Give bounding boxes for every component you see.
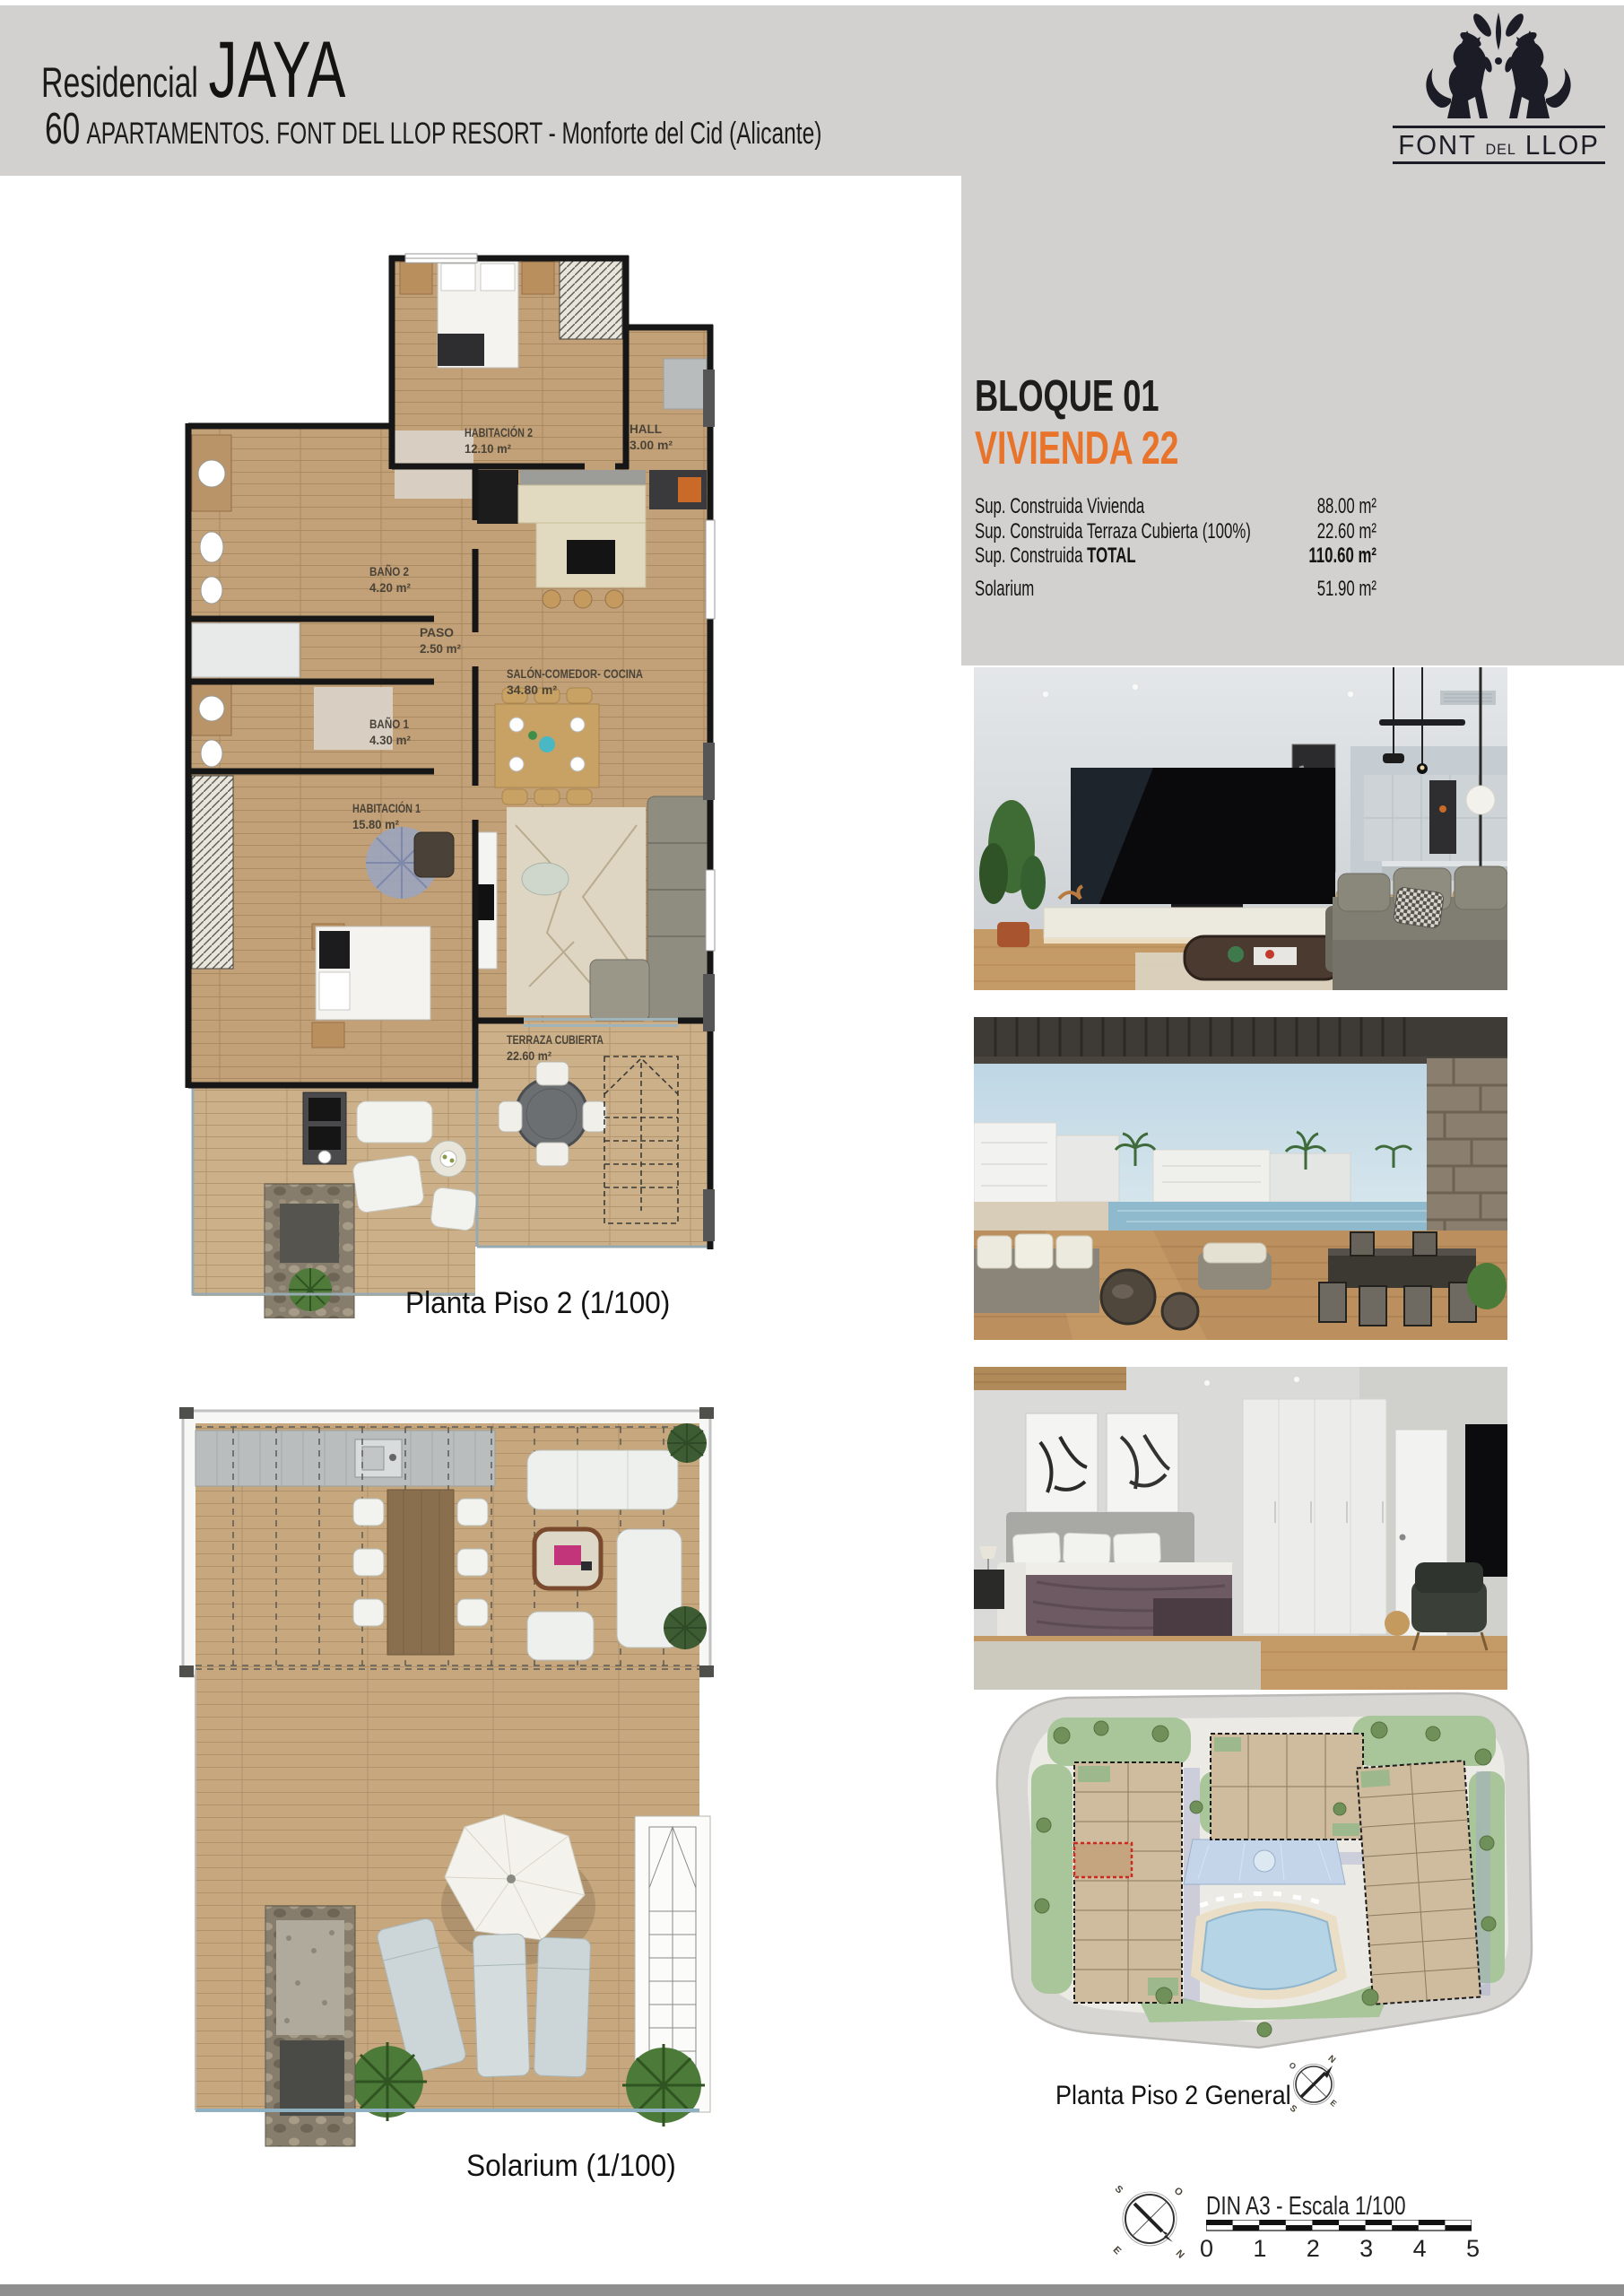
bbq-unit	[303, 1092, 346, 1164]
compass-n: N	[1326, 2054, 1338, 2066]
compass-icon: N O E S	[1284, 2048, 1343, 2113]
tv-screen	[1465, 1424, 1507, 1577]
room-label-bano2: BAÑO 2	[369, 565, 409, 578]
compass-icon-scale: S O E N	[1108, 2178, 1191, 2260]
fireplace-cabinet	[649, 470, 707, 509]
room-label-terraza: TERRAZA CUBIERTA	[507, 1033, 604, 1047]
solarium-lounge	[527, 1423, 707, 1660]
row-value: 51.90 m²	[1317, 577, 1376, 602]
block-left	[1074, 1762, 1182, 2003]
room-area-hall: 3.00 m²	[630, 439, 673, 452]
tick: 4	[1413, 2235, 1427, 2263]
dining-table	[495, 688, 599, 804]
row-label: Sup. Construida Terraza Cubierta (100%)	[975, 519, 1251, 544]
room-label-paso: PASO	[420, 626, 454, 639]
subtitle-text: APARTAMENTOS. FONT DEL LLOP RESORT - Mon…	[86, 117, 821, 152]
page-subtitle: 60 APARTAMENTOS. FONT DEL LLOP RESORT - …	[45, 104, 821, 154]
row-label: Solarium	[975, 577, 1034, 602]
table-row: Sup. Construida Terraza Cubierta (100%) …	[975, 519, 1376, 544]
compass-o: O	[1172, 2186, 1185, 2199]
page-title: Residencial JAYA	[41, 23, 346, 116]
row-value: 110.60 m²	[1308, 544, 1376, 569]
wardrobe-hab2	[560, 260, 622, 339]
outdoor-counter	[195, 1431, 495, 1486]
compass-o: O	[1287, 2060, 1298, 2071]
block-center	[1211, 1734, 1363, 1839]
wardrobe	[1243, 1399, 1386, 1634]
row-value: 22.60 m²	[1317, 519, 1376, 544]
wardrobe-hab1	[192, 776, 233, 969]
tick: 0	[1200, 2235, 1213, 2263]
subtitle-number: 60	[45, 104, 80, 154]
top-margin	[0, 0, 1624, 5]
logo-llop: LLOP	[1525, 129, 1600, 161]
room-area-terraza: 22.60 m²	[507, 1049, 551, 1063]
room-label-hall: HALL	[630, 422, 662, 436]
room-area-salon: 34.80 m²	[507, 683, 558, 697]
font-del-llop-emblem-icon	[1395, 5, 1602, 124]
room-area-paso: 2.50 m²	[420, 642, 461, 656]
solarium-caption: Solarium (1/100)	[466, 2149, 676, 2184]
room-label-salon: SALÓN-COMEDOR- COCINA	[507, 667, 643, 681]
pergola-ceiling	[974, 1017, 1507, 1058]
highlighted-unit-22	[1074, 1843, 1132, 1877]
compass-s: S	[1288, 2103, 1298, 2113]
block-title: BLOQUE 01	[975, 371, 1159, 422]
floor-plan-solarium: SOLARIUM 51.90 m²	[179, 1404, 717, 2148]
compass-n: N	[1174, 2248, 1186, 2260]
room-label-bano1: BAÑO 1	[369, 717, 409, 731]
scale-label: DIN A3 - Escala 1/100	[1206, 2192, 1406, 2222]
sofa-photo	[1325, 866, 1507, 990]
logo-rule-top	[1393, 126, 1605, 128]
room-area-hab2: 12.10 m²	[465, 442, 511, 456]
row-label: Sup. Construida Vivienda	[975, 494, 1144, 519]
logo-rule-bottom	[1393, 161, 1605, 164]
siteplan-caption: Planta Piso 2 General	[1055, 2081, 1291, 2111]
plan-piso2-caption: Planta Piso 2 (1/100)	[405, 1286, 670, 1321]
compass-e: E	[1328, 2098, 1338, 2109]
row-value: 88.00 m²	[1317, 494, 1376, 519]
planter	[265, 1184, 354, 1318]
scale-bar	[1206, 2220, 1472, 2234]
wood-beam	[974, 1367, 1126, 1390]
tick: 2	[1307, 2235, 1320, 2263]
row-label: Sup. Construida TOTAL	[975, 544, 1136, 569]
footer-bar	[0, 2284, 1624, 2296]
tv-icon	[478, 884, 494, 920]
floor-plan-piso2: HABITACIÓN 2 12.10 m² HALL 3.00 m² BAÑO …	[179, 251, 717, 1318]
photo-terrace	[974, 1017, 1507, 1340]
room-area-hab1: 15.80 m²	[352, 818, 399, 831]
sideboard	[1044, 908, 1367, 938]
logo-wordmark: FONT DEL LLOP	[1398, 129, 1600, 161]
photo-living-room	[974, 667, 1507, 990]
compass-e: E	[1111, 2245, 1124, 2257]
title-name: JAYA	[208, 23, 346, 116]
plant-icon	[1467, 1263, 1507, 1309]
table-row: Sup. Construida TOTAL 110.60 m²	[975, 544, 1376, 569]
room-area-bano1: 4.30 m²	[369, 734, 411, 747]
room-area-bano2: 4.20 m²	[369, 581, 411, 595]
table-row: Sup. Construida Vivienda 88.00 m²	[975, 494, 1376, 519]
surface-table: Sup. Construida Vivienda 88.00 m² Sup. C…	[975, 494, 1376, 601]
logo-font: FONT	[1398, 129, 1476, 161]
site-plan	[985, 1682, 1541, 2054]
coffee-table	[1185, 936, 1344, 979]
sphere-lamp-icon	[1466, 786, 1495, 814]
brochure-page: Residencial JAYA 60 APARTAMENTOS. FONT D…	[0, 0, 1624, 2296]
hall-doormat	[664, 359, 707, 409]
logo-del: DEL	[1486, 141, 1516, 158]
table-row: Solarium 51.90 m²	[975, 577, 1376, 602]
scale-ticks: 0 1 2 3 4 5	[1200, 2235, 1480, 2263]
tick: 1	[1253, 2235, 1266, 2263]
compass-s: S	[1113, 2184, 1125, 2196]
pool-deck	[974, 1202, 1108, 1231]
dwelling-title: VIVIENDA 22	[975, 422, 1178, 475]
photo-bedroom	[974, 1367, 1507, 1690]
title-prefix: Residencial	[41, 57, 198, 107]
tick: 5	[1466, 2235, 1480, 2263]
room-label-hab1: HABITACIÓN 1	[352, 802, 421, 815]
room-label-hab2: HABITACIÓN 2	[465, 426, 533, 439]
block-right	[1357, 1761, 1481, 2005]
tick: 3	[1359, 2235, 1373, 2263]
